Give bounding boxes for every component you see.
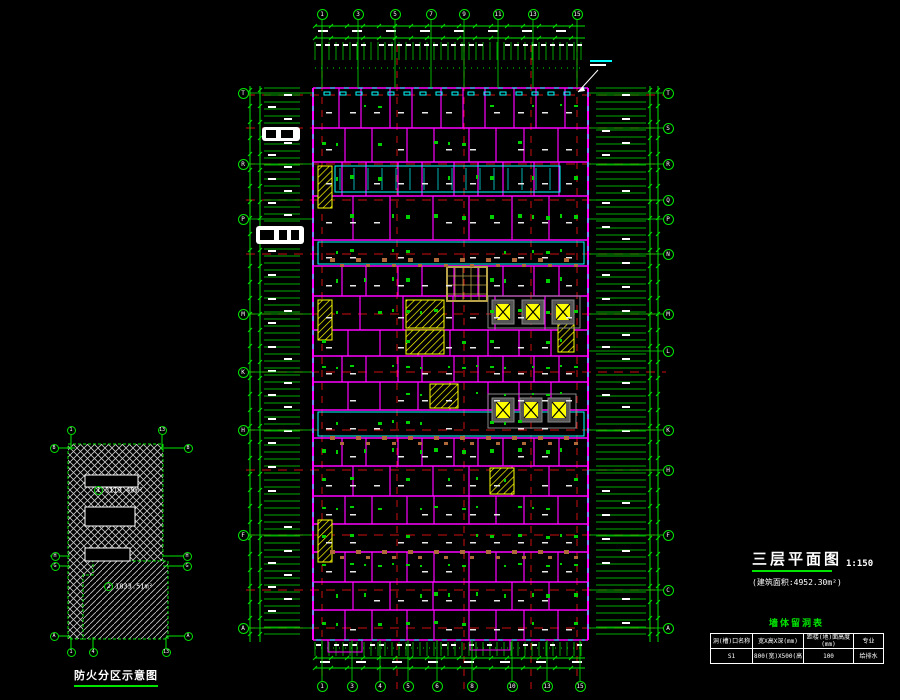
grid-bubble-right-7: L	[663, 346, 674, 357]
fire-grid-bubble-10: 1	[67, 648, 76, 657]
zone-2-number: 2	[104, 582, 113, 591]
grid-bubble-bottom-6: 10	[507, 681, 518, 692]
fire-grid-bubble-5: G	[51, 562, 60, 571]
building-area-note: (建筑面积:4952.30m²)	[752, 577, 892, 588]
grid-bubble-top-7: 15	[572, 9, 583, 20]
col-discipline: 专业	[854, 634, 884, 649]
opening-table-title: 墙体留洞表	[710, 616, 883, 629]
grid-bubble-bottom-2: 4	[375, 681, 386, 692]
grid-bubble-bottom-5: 8	[467, 681, 478, 692]
floor-plan-drawing	[0, 0, 900, 700]
fire-grid-bubble-3: B	[184, 444, 193, 453]
grid-bubble-top-4: 9	[459, 9, 470, 20]
grid-bubble-right-3: Q	[663, 195, 674, 206]
cad-sheet: 三层平面图1:150 (建筑面积:4952.30m²) 墙体留洞表 洞(槽)口名…	[0, 0, 900, 700]
fire-grid-bubble-6: H	[183, 552, 192, 561]
grid-bubble-right-9: H	[663, 465, 674, 476]
grid-bubble-left-7: A	[238, 623, 249, 634]
fire-grid-bubble-12: 13	[162, 648, 171, 657]
col-dimensions: 宽X高X深(mm)	[753, 634, 804, 649]
grid-bubble-bottom-4: 6	[432, 681, 443, 692]
grid-bubble-right-0: T	[663, 88, 674, 99]
detail-index-symbol	[256, 226, 304, 244]
title-block: 三层平面图1:150 (建筑面积:4952.30m²)	[752, 548, 892, 588]
fire-grid-bubble-4: H	[51, 552, 60, 561]
fire-zone-1-label: 13119.49m²	[94, 486, 143, 496]
grid-bubble-bottom-3: 5	[403, 681, 414, 692]
grid-bubble-left-5: H	[238, 425, 249, 436]
grid-bubble-bottom-8: 15	[575, 681, 586, 692]
detail-index-symbol	[262, 127, 300, 141]
grid-bubble-left-3: M	[238, 309, 249, 320]
fire-grid-bubble-8: A	[50, 632, 59, 641]
grid-bubble-top-6: 13	[528, 9, 539, 20]
col-height-above-floor: 距楼(地)面高度(mm)	[804, 634, 854, 649]
grid-bubble-right-8: K	[663, 425, 674, 436]
grid-bubble-right-5: N	[663, 249, 674, 260]
grid-bubble-right-11: C	[663, 585, 674, 596]
grid-bubble-left-6: F	[238, 530, 249, 541]
fire-grid-bubble-11: 4	[89, 648, 98, 657]
fire-grid-bubble-1: 13	[158, 426, 167, 435]
fire-grid-bubble-9: A	[184, 632, 193, 641]
cell-discipline: 给排水	[854, 649, 884, 664]
fire-diagram-caption: 防火分区示意图	[74, 667, 158, 687]
grid-bubble-right-1: S	[663, 123, 674, 134]
zone-2-area: 1833.51m²	[115, 583, 153, 591]
drawing-title: 三层平面图	[752, 548, 842, 569]
fire-zone-2-label: 21833.51m²	[104, 582, 153, 592]
fire-grid-bubble-2: B	[50, 444, 59, 453]
grid-bubble-bottom-1: 3	[347, 681, 358, 692]
zone-1-area: 3119.49m²	[105, 487, 143, 495]
opening-table-row: S1 800(宽)X500(高)X150 100 给排水	[711, 649, 884, 664]
zone-1-number: 1	[94, 486, 103, 495]
grid-bubble-right-2: R	[663, 159, 674, 170]
grid-bubble-right-10: F	[663, 530, 674, 541]
grid-bubble-left-0: T	[238, 88, 249, 99]
fire-compartment-diagram	[50, 435, 184, 648]
fire-grid-bubble-0: 1	[67, 426, 76, 435]
grid-bubble-bottom-7: 13	[542, 681, 553, 692]
grid-bubble-right-4: P	[663, 214, 674, 225]
title-underline	[752, 570, 832, 572]
cell-dimensions: 800(宽)X500(高)X150	[753, 649, 804, 664]
grid-bubble-bottom-0: 1	[317, 681, 328, 692]
grid-bubble-top-2: 5	[390, 9, 401, 20]
grid-bubble-right-12: A	[663, 623, 674, 634]
col-opening-name: 洞(槽)口名称	[711, 634, 753, 649]
grid-bubble-right-6: M	[663, 309, 674, 320]
opening-table-header-row: 洞(槽)口名称 宽X高X深(mm) 距楼(地)面高度(mm) 专业	[711, 634, 884, 649]
grid-bubble-left-4: K	[238, 367, 249, 378]
grid-bubble-left-1: R	[238, 159, 249, 170]
grid-bubble-top-0: 1	[317, 9, 328, 20]
grid-bubble-top-5: 11	[493, 9, 504, 20]
drawing-scale: 1:150	[846, 559, 873, 569]
opening-table: 洞(槽)口名称 宽X高X深(mm) 距楼(地)面高度(mm) 专业 S1 800…	[710, 633, 884, 664]
grid-bubble-top-3: 7	[426, 9, 437, 20]
grid-bubble-top-1: 3	[353, 9, 364, 20]
cell-opening-name: S1	[711, 649, 753, 664]
cell-height: 100	[804, 649, 854, 664]
fire-grid-bubble-7: G	[183, 562, 192, 571]
grid-bubble-left-2: P	[238, 214, 249, 225]
